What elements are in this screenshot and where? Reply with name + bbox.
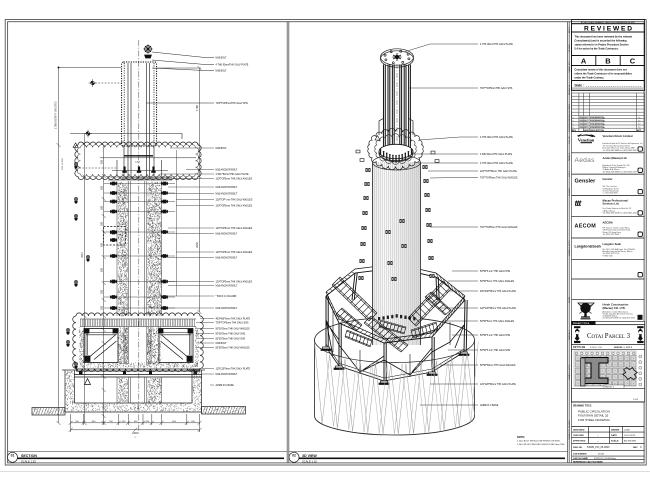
svg-text:2944: 2944 <box>81 252 84 258</box>
svg-text:300: 300 <box>101 221 104 226</box>
svg-text:TOP*TOP5mmTHK GALV SHS: TOP*TOP5mmTHK GALV SHS <box>480 87 513 90</box>
svg-text:Aedas: Aedas <box>575 157 596 164</box>
svg-text:PARCEL 1, LOT 2: PARCEL 1, LOT 2 <box>614 346 633 349</box>
svg-text:PANEL 1, LOT 2: PANEL 1, LOT 2 <box>568 240 571 256</box>
svg-text:Langdon&Seah: Langdon&Seah <box>575 245 601 249</box>
svg-text:Venetian: Venetian <box>578 137 595 142</box>
svg-text:(Macau) CO. LTD.: (Macau) CO. LTD. <box>603 306 626 310</box>
svg-text:120*TOP5mm THK GALV ANGLES: 120*TOP5mm THK GALV ANGLES <box>216 251 253 254</box>
svg-text:M16 BOLT: M16 BOLT <box>216 71 228 73</box>
svg-text:FOR APPROVAL: FOR APPROVAL <box>590 116 606 119</box>
svg-text:M16 BOLT: M16 BOLT <box>216 343 228 345</box>
svg-text:02: 02 <box>292 453 296 457</box>
svg-text:4 500 *50mmTHK GALV PLATE: 4 500 *50mmTHK GALV PLATE <box>216 173 249 176</box>
svg-text:3D VIEW: 3D VIEW <box>302 454 317 458</box>
svg-text:M16 ANCHOR BOLT: M16 ANCHOR BOLT <box>216 193 238 196</box>
svg-text:* 500 R.C COLUMN: * 500 R.C COLUMN <box>216 296 237 298</box>
svg-text:Consultants(s) and is accorded: Consultants(s) and is accorded the follo… <box>575 40 628 43</box>
svg-text:5152B_PCI_05-0093.dwg: 5152B_PCI_05-0093.dwg <box>594 458 616 460</box>
svg-text:4 500 90mmTHK GALV PLATE: 4 500 90mmTHK GALV PLATE <box>480 153 513 156</box>
svg-text:FOR APPROVAL: FOR APPROVAL <box>590 123 606 126</box>
svg-text:3152B: 3152B <box>598 454 604 456</box>
svg-text:DETAIL 25: DETAIL 25 <box>568 84 571 95</box>
svg-text:NOTE:: NOTE: <box>517 435 525 439</box>
svg-text:50*50*5 mm THK GALV.SHS: 50*50*5 mm THK GALV.SHS <box>480 270 510 273</box>
svg-text:1. ALL BOLT SHOULD BE FIXING O: 1. ALL BOLT SHOULD BE FIXING ON SITE. <box>517 440 561 443</box>
svg-text:C: C <box>630 56 636 65</box>
svg-text:500: 500 <box>101 185 104 190</box>
svg-text:120*TOP5mm THK GALV ANGLES: 120*TOP5mm THK GALV ANGLES <box>216 205 253 208</box>
svg-text:4 THK 90mmTHK GALV PLATE: 4 THK 90mmTHK GALV PLATE <box>480 136 513 139</box>
svg-text:CHECKED: CHECKED <box>573 435 584 437</box>
svg-text:4 THK 90mmTHK GALV PLATE: 4 THK 90mmTHK GALV PLATE <box>216 64 249 67</box>
svg-text:TOP*TOP5mm THK GALV ANGLES: TOP*TOP5mm THK GALV ANGLES <box>480 177 518 180</box>
svg-text:COTAI PARCEL 3: COTAI PARCEL 3 <box>587 333 631 340</box>
svg-text:300: 300 <box>101 205 104 210</box>
svg-text:5.4 for action by the Trade Co: 5.4 for action by the Trade Contractor. <box>575 48 619 51</box>
svg-text:120*TOP5mm THK GALV ANGLES: 120*TOP5mm THK GALV ANGLES <box>216 178 253 181</box>
svg-text:M16 ANCHOR BOLT: M16 ANCHOR BOLT <box>216 169 238 172</box>
svg-text:TOP*TOP0mm THK GALV SHS: TOP*TOP0mm THK GALV SHS <box>216 322 249 325</box>
svg-text:DWG NO: DWG NO <box>573 447 583 449</box>
svg-text:120*TOP* mm THK GALV ANGLES: 120*TOP* mm THK GALV ANGLES <box>216 199 253 202</box>
svg-text:Tel: (852) 3922 9000: Tel: (852) 3922 9000 <box>603 234 619 236</box>
svg-text:FOR APPROVAL: FOR APPROVAL <box>590 120 606 123</box>
svg-text:relieve the Trade Contractor o: relieve the Trade Contractor of its resp… <box>575 73 633 76</box>
svg-text:Gensler: Gensler <box>575 179 597 185</box>
svg-text:50*50*5 mm THK GALV.SHS: 50*50*5 mm THK GALV.SHS <box>480 349 510 352</box>
svg-text:50*50*5mm THK GALV ANGLES: 50*50*5mm THK GALV ANGLES <box>480 280 515 283</box>
svg-text:Gensler: Gensler <box>603 177 613 181</box>
svg-text:REV C: REV C <box>569 26 571 33</box>
svg-text:120*TOP5mm THK GALV ANGLES: 120*TOP5mm THK GALV ANGLES <box>216 227 253 230</box>
svg-text:00/00/15: 00/00/15 <box>580 127 589 129</box>
svg-text:14-12-2015: 14-12-2015 <box>624 435 636 437</box>
svg-text:C: C <box>640 446 642 449</box>
svg-text:M16 ANCHOR BOLT: M16 ANCHOR BOLT <box>216 285 238 288</box>
svg-text:Venetian Orient Limited: Venetian Orient Limited <box>603 134 633 138</box>
svg-text:2394: 2394 <box>132 431 138 435</box>
svg-text:M16 ANCHOR BOLT: M16 ANCHOR BOLT <box>216 257 238 260</box>
svg-text:CAD FILE NAME: CAD FILE NAME <box>573 457 589 460</box>
svg-text:This document has been reviewe: This document has been reviewed by the r… <box>575 36 633 39</box>
svg-text:A: A <box>581 56 587 65</box>
svg-text:5152B_PCI_05-0093: 5152B_PCI_05-0093 <box>587 446 610 449</box>
svg-text:Langdon Seah: Langdon Seah <box>603 242 622 246</box>
svg-text:Consultant review of this docu: Consultant review of this document does … <box>575 69 627 72</box>
svg-text:M16 BOLT: M16 BOLT <box>216 148 228 150</box>
svg-text:APPROVED: APPROVED <box>573 440 586 443</box>
svg-text:01: 01 <box>11 453 15 457</box>
svg-text:M16 ANCHOR BOLT: M16 ANCHOR BOLT <box>216 233 238 236</box>
svg-text:PANEL 1, LOT 2: PANEL 1, LOT 2 <box>568 364 571 380</box>
svg-text:PARCEL 3: PARCEL 3 <box>568 329 571 340</box>
svg-text:PANEL 1: PANEL 1 <box>568 152 571 161</box>
svg-text:AECOM: AECOM <box>575 224 597 230</box>
svg-text:A2980 R.C BASE: A2980 R.C BASE <box>480 404 499 407</box>
svg-text:Tel: (853) 2832 3268 Fax: (85: Tel: (853) 2832 3268 Fax: (853) 2832 326… <box>603 213 637 215</box>
svg-text:500: 500 <box>101 267 104 272</box>
svg-text:120*120*50mm THK GALV PLATE: 120*120*50mm THK GALV PLATE <box>480 307 516 310</box>
svg-text:SECTION: SECTION <box>21 454 37 458</box>
svg-text:1-M-1: 1-M-1 <box>135 162 141 164</box>
svg-text:5152B_PCI_05-0093: 5152B_PCI_05-0093 <box>569 419 571 439</box>
svg-text:50*50*5mm THK GALV SHS: 50*50*5mm THK GALV SHS <box>216 333 246 336</box>
svg-text:5152B: 5152B <box>569 296 571 303</box>
svg-text:M16 ANCHOR BOLT: M16 ANCHOR BOLT <box>216 186 238 189</box>
svg-text:50*50*5mm THK GALV ANGLES: 50*50*5mm THK GALV ANGLES <box>480 320 515 323</box>
svg-text:REFERENCE CAD FILE NAME: REFERENCE CAD FILE NAME <box>573 461 603 464</box>
svg-text:DRAWN: DRAWN <box>611 429 620 432</box>
svg-text:TOP*TOP5mm THK GALV ANGLES: TOP*TOP5mm THK GALV ANGLES <box>480 226 518 229</box>
svg-text:Tel: (853) 2836 6866 Fax: (85: Tel: (853) 2836 6866 Fax: (853) 2830 929… <box>603 171 637 173</box>
svg-text:LOT 2: LOT 2 <box>569 170 571 177</box>
svg-text:120*TOP5mm THK GALV ANGLES: 120*TOP5mm THK GALV ANGLES <box>216 281 253 284</box>
svg-text:300: 300 <box>101 289 104 294</box>
svg-text:M16 ANCHOR BOLT: M16 ANCHOR BOLT <box>216 373 238 376</box>
svg-text:DATE: DATE <box>611 434 617 437</box>
svg-text:5152B_PCI: 5152B_PCI <box>569 61 571 72</box>
svg-text:Aedas (Macau) Ltd.: Aedas (Macau) Ltd. <box>603 156 628 160</box>
svg-text:Tel: (853) 2882 8888 Fax: (85: Tel: (853) 2882 8888 Fax: (853) 2882 889… <box>603 150 637 152</box>
svg-text:KEY PLAN: KEY PLAN <box>573 346 585 349</box>
svg-text:FOUNTAIN DETAIL 25 STEEL: FOUNTAIN DETAIL 25 STEEL <box>568 103 571 132</box>
svg-text:AS SHOWN: AS SHOWN <box>624 440 636 443</box>
svg-text:400*200*50mm THK GALV PLATE: 400*200*50mm THK GALV PLATE <box>480 290 516 293</box>
svg-text:TOP*TOP5mmTHK GALV SHS: TOP*TOP5mmTHK GALV SHS <box>216 102 249 105</box>
svg-text:A2980 R.C BASE: A2980 R.C BASE <box>216 384 235 387</box>
svg-text:Tel: (853) 2875 1898 Fax: (85: Tel: (853) 2875 1898 Fax: (853) 2875 183… <box>603 318 635 320</box>
svg-text:B: B <box>605 56 611 65</box>
svg-text:DRAWING TITLE:: DRAWING TITLE: <box>573 405 592 408</box>
svg-text:50*50*5mm THK GALV ANGLES: 50*50*5mm THK GALV ANGLES <box>216 347 251 350</box>
svg-text:120*120*50mm THK GALV PLATE: 120*120*50mm THK GALV PLATE <box>480 383 516 386</box>
svg-text:00/00/15: 00/00/15 <box>580 117 589 119</box>
svg-text:500: 500 <box>101 159 104 164</box>
svg-text:F 2833 9435: F 2833 9435 <box>603 255 613 257</box>
svg-text:PCI_05: PCI_05 <box>569 136 571 144</box>
svg-text:500: 500 <box>101 242 104 247</box>
svg-text:00/00/15: 00/00/15 <box>580 124 589 126</box>
svg-text:REV: REV <box>633 447 638 449</box>
svg-text:4 THK 90mmTHK GALV PLATE: 4 THK 90mmTHK GALV PLATE <box>480 43 513 46</box>
svg-text:SCALE 1:7500: SCALE 1:7500 <box>590 346 602 349</box>
svg-text:05-0093: 05-0093 <box>569 43 571 51</box>
svg-text:2950: 2950 <box>195 242 199 248</box>
svg-text:120*TOP*50mm THK GALV PLATE: 120*TOP*50mm THK GALV PLATE <box>480 170 517 173</box>
svg-text:M16 BOLT: M16 BOLT <box>216 58 228 60</box>
svg-text:SCALE: SCALE <box>611 440 619 443</box>
svg-text:1786 (VERIFY ON SITE): 1786 (VERIFY ON SITE) <box>55 101 58 129</box>
svg-text:4 THK 90mmTHK GALV PLATE: 4 THK 90mmTHK GALV PLATE <box>480 162 513 165</box>
svg-text:DESIGNED: DESIGNED <box>573 430 585 432</box>
svg-text:300: 300 <box>101 305 104 310</box>
svg-text:SCALE 1:10: SCALE 1:10 <box>302 460 317 464</box>
svg-text:FOR STEEL DRAWING: FOR STEEL DRAWING <box>578 418 610 422</box>
svg-text:Services Ltd.: Services Ltd. <box>603 201 620 205</box>
svg-text:under the Trade Contract.: under the Trade Contract. <box>575 77 605 80</box>
svg-text:2. ALL FILLET WELDED SHOULD BE: 2. ALL FILLET WELDED SHOULD BE 6mm THK. <box>517 443 565 446</box>
svg-text:R E V I E W E D: R E V I E W E D <box>584 26 632 33</box>
svg-text:1:500: 1:500 <box>633 399 639 401</box>
svg-text:00/00/15: 00/00/15 <box>580 121 589 123</box>
svg-text:AECOM: AECOM <box>603 221 614 225</box>
svg-text:FFL +5.150: FFL +5.150 <box>62 158 64 170</box>
svg-text:FOR APPROVAL: FOR APPROVAL <box>590 126 606 129</box>
svg-text:50*50*5 mm THK GALV.SHS: 50*50*5 mm THK GALV.SHS <box>480 334 510 337</box>
svg-text:120*120*9mm THK GALV PLATE: 120*120*9mm THK GALV PLATE <box>216 368 251 371</box>
svg-text:T + 852.2523.8005: T + 852.2523.8005 <box>603 193 618 195</box>
svg-text:LUND: LUND <box>624 430 630 432</box>
svg-text:status referred to in Projec: status referred to in Project Procedure … <box>575 44 630 47</box>
svg-text:05-0093: 05-0093 <box>569 187 571 195</box>
svg-text:50*50*5mm THK GALV SHS: 50*50*5mm THK GALV SHS <box>216 338 246 341</box>
svg-text:JOB NUMBER: JOB NUMBER <box>573 454 587 456</box>
svg-text:50*50*50mm THK GALV ANGLES: 50*50*50mm THK GALV ANGLES <box>480 364 516 367</box>
svg-text:M16 ANCHOR BOLT: M16 ANCHOR BOLT <box>216 307 238 310</box>
svg-text:400*400*9mm THK GALV PLATE: 400*400*9mm THK GALV PLATE <box>216 318 251 321</box>
svg-text:50*50*5mm THK GALV ANGLES: 50*50*5mm THK GALV ANGLES <box>216 328 251 331</box>
svg-text:SCALE 1:25: SCALE 1:25 <box>21 460 36 464</box>
svg-text:1788: 1788 <box>195 105 199 111</box>
svg-text:Date :: Date : <box>575 84 585 88</box>
